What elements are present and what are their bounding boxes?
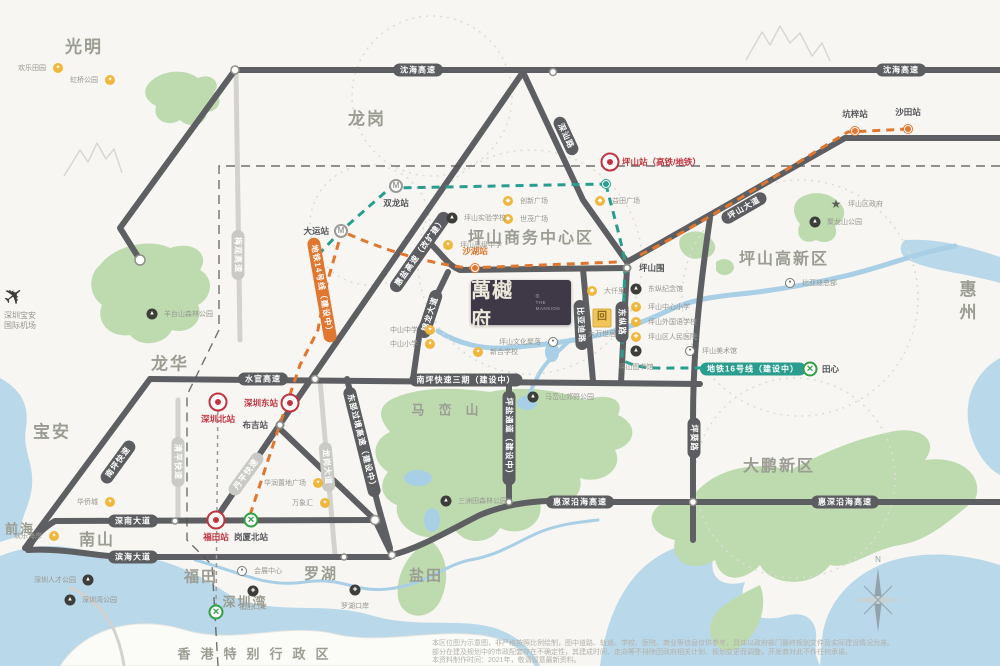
metro-station-icon: ✕ — [209, 605, 224, 620]
station-label: 沙田站 — [895, 106, 921, 118]
amenity-label: 东纵纪念馆 — [648, 284, 683, 294]
road-label-pill: 沈海高速 — [393, 64, 443, 77]
region-label: 龙岗 — [348, 105, 386, 130]
amenity-label: 坪山实验学校 — [464, 213, 506, 223]
amenity-label: 坪山中心小学 — [648, 302, 690, 312]
station-label: 深圳东站 — [244, 397, 278, 409]
metro-station-icon — [904, 125, 912, 133]
school-icon — [443, 240, 453, 250]
amenity-label: 坪山图书馆 — [619, 362, 654, 372]
school-icon — [53, 63, 63, 73]
airplane-icon: ✈ — [0, 279, 31, 314]
road-label-pill: 沈海高速 — [876, 64, 926, 77]
amenity-label: 坪山文化聚落 — [499, 337, 541, 347]
station-label: 坪山站（高铁/地铁） — [622, 156, 701, 168]
road-label-pill: 坪盐通道（建设中） — [503, 391, 516, 486]
station-label: 田心 — [822, 363, 839, 375]
museum-icon — [237, 566, 247, 576]
park-icon — [528, 392, 539, 403]
amenity-label: 万象汇 — [292, 498, 313, 508]
rail-station-icon — [207, 511, 226, 530]
amenity-label: 比亚迪总部 — [802, 278, 837, 288]
mall-icon — [595, 196, 605, 206]
station-label: 双龙站 — [383, 197, 409, 209]
school-icon — [320, 498, 330, 508]
rail-station-icon — [601, 153, 620, 172]
road-label-pill: 地铁16号线（建设中） — [700, 363, 806, 376]
metro-station-icon: ✕ — [244, 513, 259, 528]
station-label: 深圳北站 — [201, 413, 235, 425]
map-base-art: N — [0, 0, 1000, 666]
region-label: 光明 — [65, 33, 103, 58]
amenity-label: 虹桥公园 — [70, 75, 98, 85]
amenity-label: 三洲田森林公园 — [458, 496, 507, 506]
project-title: 萬樾府 — [471, 274, 532, 332]
gov-icon — [829, 197, 843, 211]
park-icon — [631, 346, 642, 357]
rail-station-icon — [281, 394, 300, 413]
metro-station-icon — [623, 264, 632, 273]
disclaimer-line: 本资料制作时间：2021年，敬请留意最新资料。 — [432, 657, 992, 666]
station-label: 大运站 — [303, 225, 329, 237]
amenity-label: 深圳湾公园 — [82, 595, 117, 605]
museum-icon — [785, 278, 795, 288]
amenity-label: 羊台山森林公园 — [164, 309, 213, 319]
metro-station-icon: M — [334, 224, 348, 238]
school-icon — [313, 478, 323, 488]
amenity-label: 大仟里 — [604, 286, 625, 296]
airport: ✈ 深圳宝安 国际机场 — [4, 282, 74, 331]
region-label: 香港特别行政区 — [177, 644, 338, 663]
road-label-pill: 坪葵路 — [688, 418, 701, 459]
park-icon — [441, 496, 452, 507]
amenity-label: 新合学校 — [490, 347, 518, 357]
museum-icon — [685, 346, 695, 356]
park-icon — [83, 575, 94, 586]
station-label: 坑梓站 — [842, 108, 868, 120]
park-icon — [631, 284, 642, 295]
school-icon — [105, 497, 115, 507]
station-label: 坪山围 — [639, 262, 665, 274]
metro-station-icon — [471, 264, 479, 272]
amenity-label: 益田广场 — [612, 196, 640, 206]
region-label: 南山 — [79, 526, 115, 550]
road-label-pill: 惠深沿海高速 — [811, 496, 879, 509]
station-label: 布吉站 — [242, 419, 268, 431]
road-label-pill: 滨海大道 — [108, 551, 158, 564]
region-label: 罗湖 — [304, 563, 338, 584]
amenity-label: 坪山区政府 — [848, 199, 883, 209]
hospital-icon — [631, 332, 641, 342]
amenity-label: 华侨城 — [77, 497, 98, 507]
project-logo-box: 萬樾府 ® THE MANSION — [471, 280, 571, 325]
amenity-label: 世茂广场 — [520, 214, 548, 224]
mall-icon — [503, 196, 513, 206]
heritage-icon — [593, 309, 612, 328]
amenity-label: 会展中心 — [254, 566, 282, 576]
location-map: N 萬樾府 ® THE MANSION ✈ 深圳宝安 国际机场 本区位图为示意图… — [0, 0, 1000, 666]
region-label: 宝安 — [33, 418, 71, 443]
school-icon — [631, 302, 641, 312]
amenity-label: 中山中学 — [390, 325, 418, 335]
amenity-label: 聚龙山公园 — [827, 217, 862, 227]
amenity-label: 坪山美术馆 — [702, 346, 737, 356]
station-label: 福田站 — [203, 531, 229, 543]
amenity-label: 创新广场 — [520, 196, 548, 206]
road-label-pill: 东纵路 — [616, 302, 629, 343]
amenity-label: 欢乐田园 — [18, 63, 46, 73]
airport-label-line2: 国际机场 — [4, 321, 74, 331]
region-label: 盐田 — [409, 565, 443, 586]
amenity-label: 深圳人才公园 — [34, 575, 76, 585]
road-label-pill: 比亚迪路 — [573, 300, 589, 351]
park-areas — [91, 72, 977, 651]
amenity-label: 坪山区人民医院 — [648, 332, 697, 342]
park-icon — [810, 217, 821, 228]
amenity-label: 中山小学 — [390, 339, 418, 349]
region-label: 马峦山 — [411, 400, 492, 419]
rail-station-icon — [209, 393, 228, 412]
park-icon — [447, 213, 458, 224]
museum-icon — [548, 337, 558, 347]
compass-north-label: N — [875, 555, 881, 564]
region-label: 福田 — [184, 566, 218, 587]
project-subtitle: ® THE MANSION — [536, 294, 571, 312]
amenity-label: 福田口岸 — [239, 602, 267, 612]
amenity-label: 欢乐海岸 — [14, 531, 42, 541]
mall-icon — [587, 286, 597, 296]
park-icon — [65, 595, 76, 606]
metro-station-icon — [276, 421, 285, 430]
disclaimer-line: 部分在建及规划中的市政配套存在不确定性，其建成时间、走向等不排除因政府相关计划、… — [432, 649, 992, 658]
region-label: 惠州 — [954, 280, 979, 326]
station-label: 岗厦北站 — [234, 531, 268, 543]
amenity-label: 马峦山郊野公园 — [545, 392, 594, 402]
road-label-pill: 梅观高速 — [232, 230, 245, 280]
metro-station-icon: M — [389, 179, 403, 193]
school-icon — [105, 75, 115, 85]
metro-station-icon: ✕ — [803, 362, 818, 377]
road-label-pill: 清平快速 — [172, 437, 185, 487]
region-label: 龙华 — [151, 350, 189, 375]
project-subtitle-en: THE MANSION — [536, 300, 571, 312]
port-icon — [350, 585, 361, 596]
amenity-label: 坪山高级中学 — [460, 240, 502, 250]
park-icon — [147, 309, 158, 320]
amenity-label: 华润置地广场 — [264, 478, 306, 488]
metro-station-icon — [602, 180, 610, 188]
port-icon — [248, 586, 259, 597]
amenity-label: 罗湖口岸 — [341, 601, 369, 611]
region-label: 坪山高新区 — [739, 245, 829, 269]
disclaimer-line: 本区位图为示意图，非严格按照比例绘制，图中道路、轨道、学校、医院、商业等信息仅供… — [432, 640, 992, 649]
metro-station-icon — [851, 127, 859, 135]
road-label-pill: 水官高速 — [238, 373, 288, 386]
road-label-pill: 南坪快速三期（建设中） — [410, 374, 523, 387]
school-icon — [49, 531, 59, 541]
school-icon — [631, 317, 641, 327]
disclaimer-text: 本区位图为示意图，非严格按照比例绘制，图中道路、轨道、学校、医院、商业等信息仅供… — [432, 640, 992, 666]
school-icon — [473, 347, 483, 357]
region-label: 大鹏新区 — [743, 452, 815, 476]
amenity-label: 坪山外国语学校 — [648, 317, 697, 327]
amenity-label: 大万世居 — [588, 329, 616, 339]
road-label-pill: 深南大道 — [108, 515, 158, 528]
school-icon — [425, 339, 435, 349]
road-label-pill: 惠深沿海高速 — [546, 496, 614, 509]
school-icon — [425, 325, 435, 335]
